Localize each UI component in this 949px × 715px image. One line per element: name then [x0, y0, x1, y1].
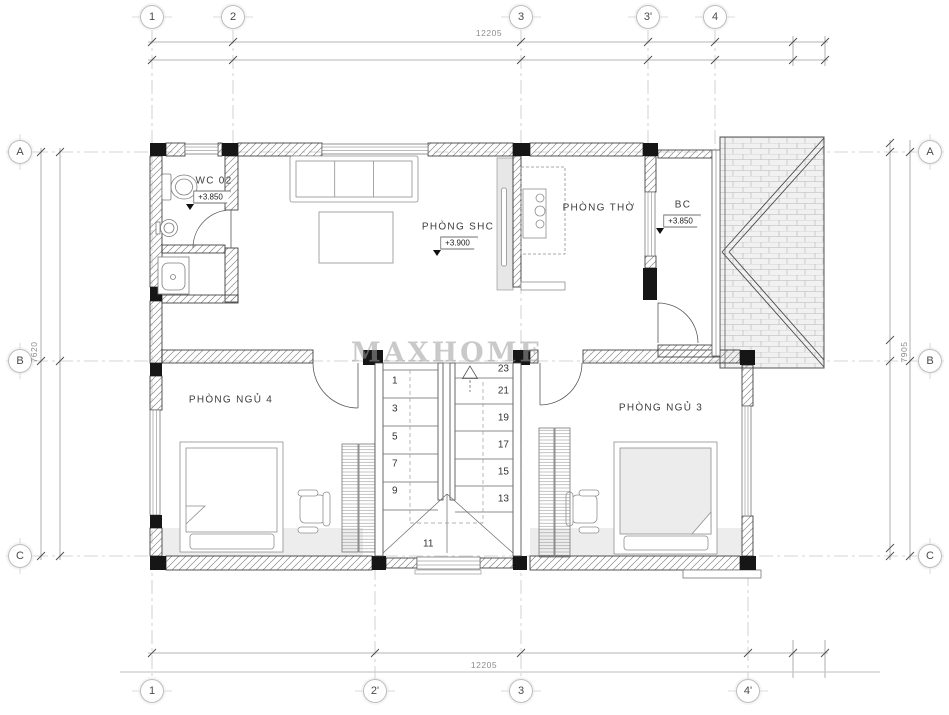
stair-step-3: 3 [392, 404, 398, 415]
maxhome-watermark: MAXHOME [351, 338, 543, 369]
grid-bubble-top-3: 3 [509, 5, 533, 29]
grid-bubble-bottom-4p: 4' [736, 679, 760, 703]
grid-bubble-left-c: C [8, 544, 32, 568]
stair-step-17: 17 [487, 440, 509, 451]
dim-top-overall: 12205 [476, 28, 502, 38]
room-label-shc: PHÒNG SHC [422, 222, 494, 233]
stair-step-11: 11 [423, 539, 433, 550]
grid-bubble-right-c: C [918, 544, 942, 568]
room-label-ngu4: PHÒNG NGỦ 4 [189, 395, 273, 406]
grid-bubble-right-b: B [918, 349, 942, 373]
floor-plan: MAXHOME 1 2 3 3' 4 1 2' 3 4' A B C A B C… [0, 0, 949, 715]
grid-bubble-right-a: A [918, 140, 942, 164]
grid-bubble-top-4: 4 [703, 5, 727, 29]
grid-bubble-top-3p: 3' [636, 5, 660, 29]
dim-left-overall: 7620 [29, 342, 39, 363]
grid-bubble-top-1: 1 [140, 5, 164, 29]
room-label-bc: BC [675, 200, 692, 211]
stair-step-23: 23 [487, 364, 509, 375]
level-marker-wc [186, 204, 194, 210]
dim-right-overall: 7905 [899, 342, 909, 363]
level-flag-wc: +3.850 [193, 191, 231, 204]
stair-step-5: 5 [392, 432, 398, 443]
grid-bubble-left-a: A [8, 140, 32, 164]
stair-step-1: 1 [392, 376, 398, 387]
level-marker-bc [656, 228, 664, 234]
level-flag-shc: +3.900 [440, 237, 478, 250]
stair-step-21: 21 [487, 386, 509, 397]
grid-bubble-bottom-1: 1 [140, 679, 164, 703]
stair-step-7: 7 [392, 459, 398, 470]
dim-bottom-overall: 12205 [471, 660, 497, 670]
grid-bubble-bottom-3: 3 [509, 679, 533, 703]
room-label-tho: PHÒNG THỜ [563, 203, 636, 214]
level-flag-bc: +3.850 [663, 215, 701, 228]
room-label-wc: WC 02 [195, 176, 232, 187]
grid-bubble-bottom-2p: 2' [363, 679, 387, 703]
level-marker-shc [433, 250, 441, 256]
stair-step-15: 15 [487, 467, 509, 478]
grid-bubble-top-2: 2 [221, 5, 245, 29]
room-label-ngu3: PHÒNG NGỦ 3 [619, 403, 703, 414]
stair-step-19: 19 [487, 413, 509, 424]
stair-step-9: 9 [392, 486, 398, 497]
stair-step-13: 13 [487, 494, 509, 505]
